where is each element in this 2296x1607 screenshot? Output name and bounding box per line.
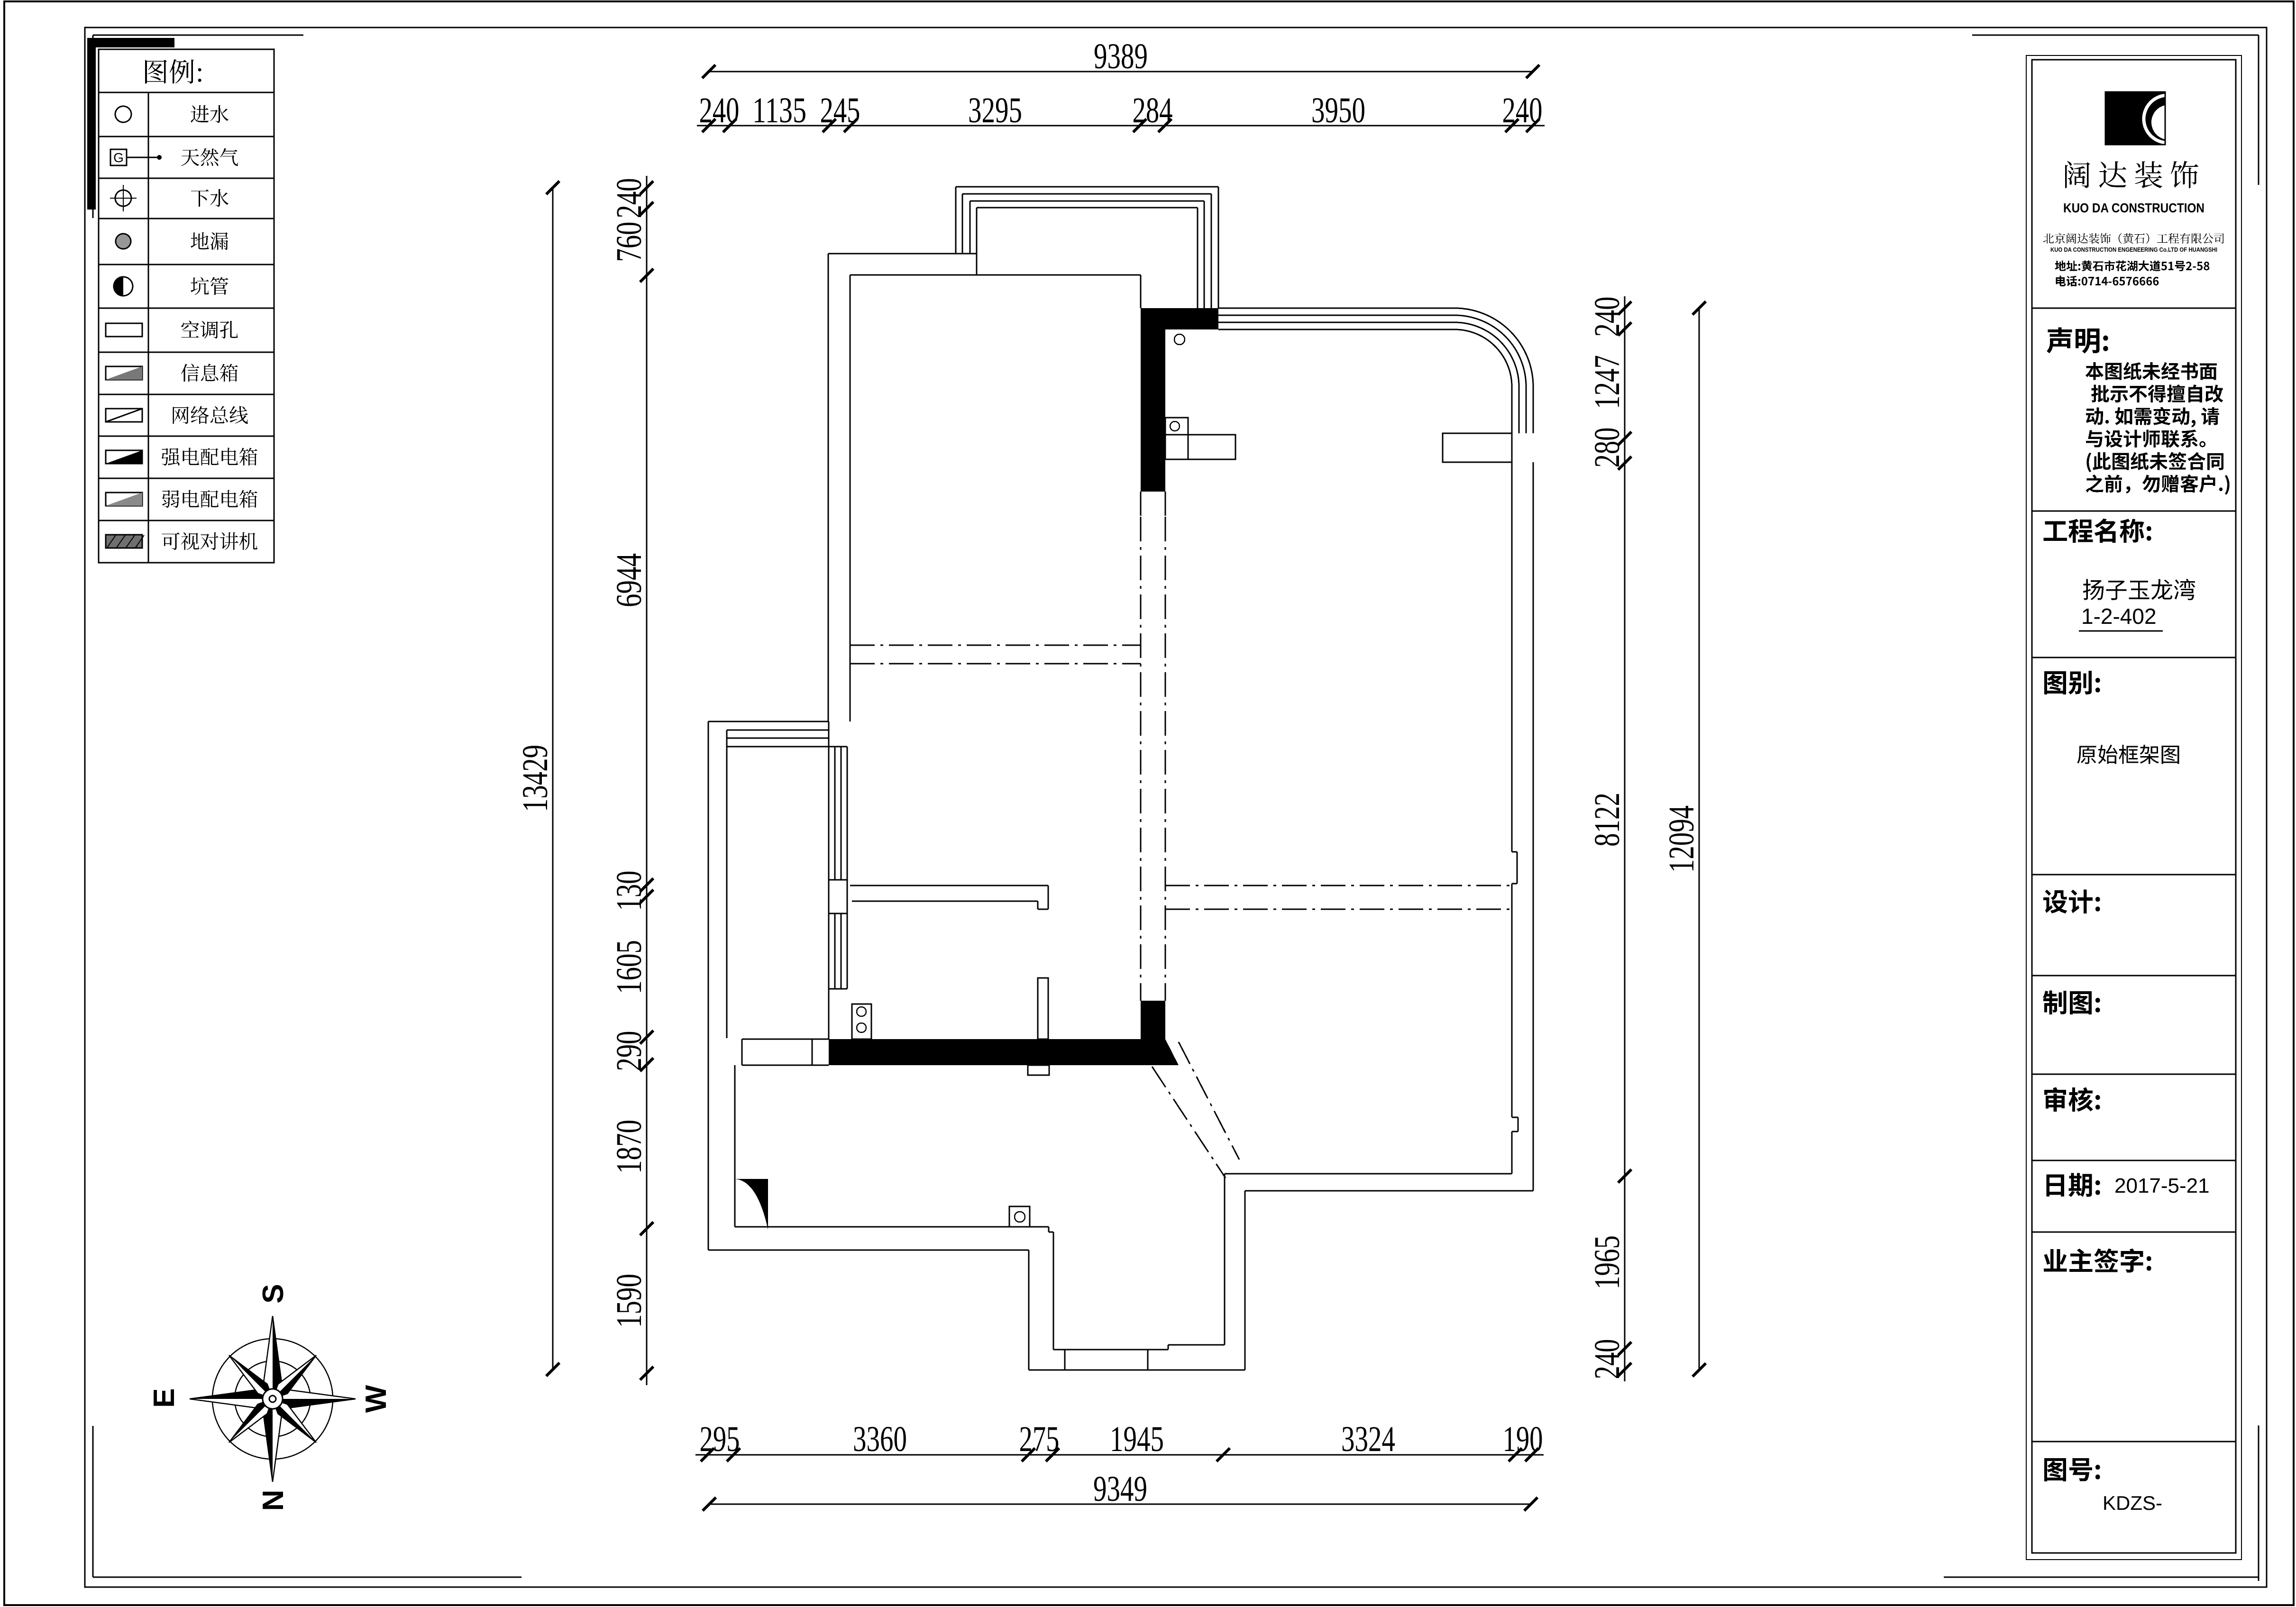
svg-text:295: 295 (700, 1419, 740, 1459)
svg-text:190: 190 (1503, 1419, 1543, 1459)
svg-text:W: W (360, 1385, 393, 1413)
svg-text:3950: 3950 (1311, 91, 1365, 130)
svg-text:12094: 12094 (1662, 805, 1701, 873)
svg-text:1-2-402: 1-2-402 (2081, 604, 2157, 629)
svg-text:N: N (257, 1490, 290, 1511)
svg-text:760: 760 (609, 222, 649, 262)
svg-text:8122: 8122 (1587, 793, 1627, 847)
svg-text:6944: 6944 (609, 553, 649, 607)
svg-text:1590: 1590 (609, 1274, 649, 1328)
svg-text:KDZS-: KDZS- (2103, 1492, 2162, 1514)
svg-text:1870: 1870 (609, 1120, 649, 1174)
svg-text:9349: 9349 (1093, 1469, 1147, 1509)
svg-text:1945: 1945 (1110, 1419, 1164, 1459)
svg-text:KUO DA CONSTRUCTION ENGENEERIN: KUO DA CONSTRUCTION ENGENEERING Co.LTD O… (2050, 246, 2217, 253)
svg-text:240: 240 (609, 178, 649, 219)
svg-text:284: 284 (1133, 91, 1173, 130)
svg-text:KUO DA CONSTRUCTION: KUO DA CONSTRUCTION (2063, 201, 2205, 215)
svg-text:S: S (257, 1284, 290, 1303)
svg-text:1965: 1965 (1587, 1235, 1627, 1289)
svg-text:245: 245 (820, 91, 860, 130)
svg-text:13429: 13429 (515, 745, 555, 812)
svg-text:1247: 1247 (1587, 355, 1627, 409)
svg-text:3360: 3360 (853, 1419, 907, 1459)
svg-text:G: G (113, 150, 124, 165)
svg-text:130: 130 (609, 871, 649, 911)
svg-text:240: 240 (699, 91, 740, 130)
svg-text:290: 290 (609, 1031, 649, 1071)
svg-text:E: E (148, 1388, 181, 1407)
svg-text:240: 240 (1587, 1339, 1627, 1379)
svg-text:3324: 3324 (1341, 1419, 1395, 1459)
svg-text:240: 240 (1502, 91, 1543, 130)
svg-text:1605: 1605 (609, 940, 649, 994)
svg-text:275: 275 (1019, 1419, 1060, 1459)
svg-text:3295: 3295 (968, 91, 1022, 130)
svg-text:280: 280 (1587, 428, 1627, 468)
svg-text:240: 240 (1587, 297, 1627, 337)
svg-text:1135: 1135 (752, 91, 806, 130)
svg-text:2017-5-21: 2017-5-21 (2114, 1174, 2210, 1197)
svg-text:9389: 9389 (1094, 37, 1148, 76)
